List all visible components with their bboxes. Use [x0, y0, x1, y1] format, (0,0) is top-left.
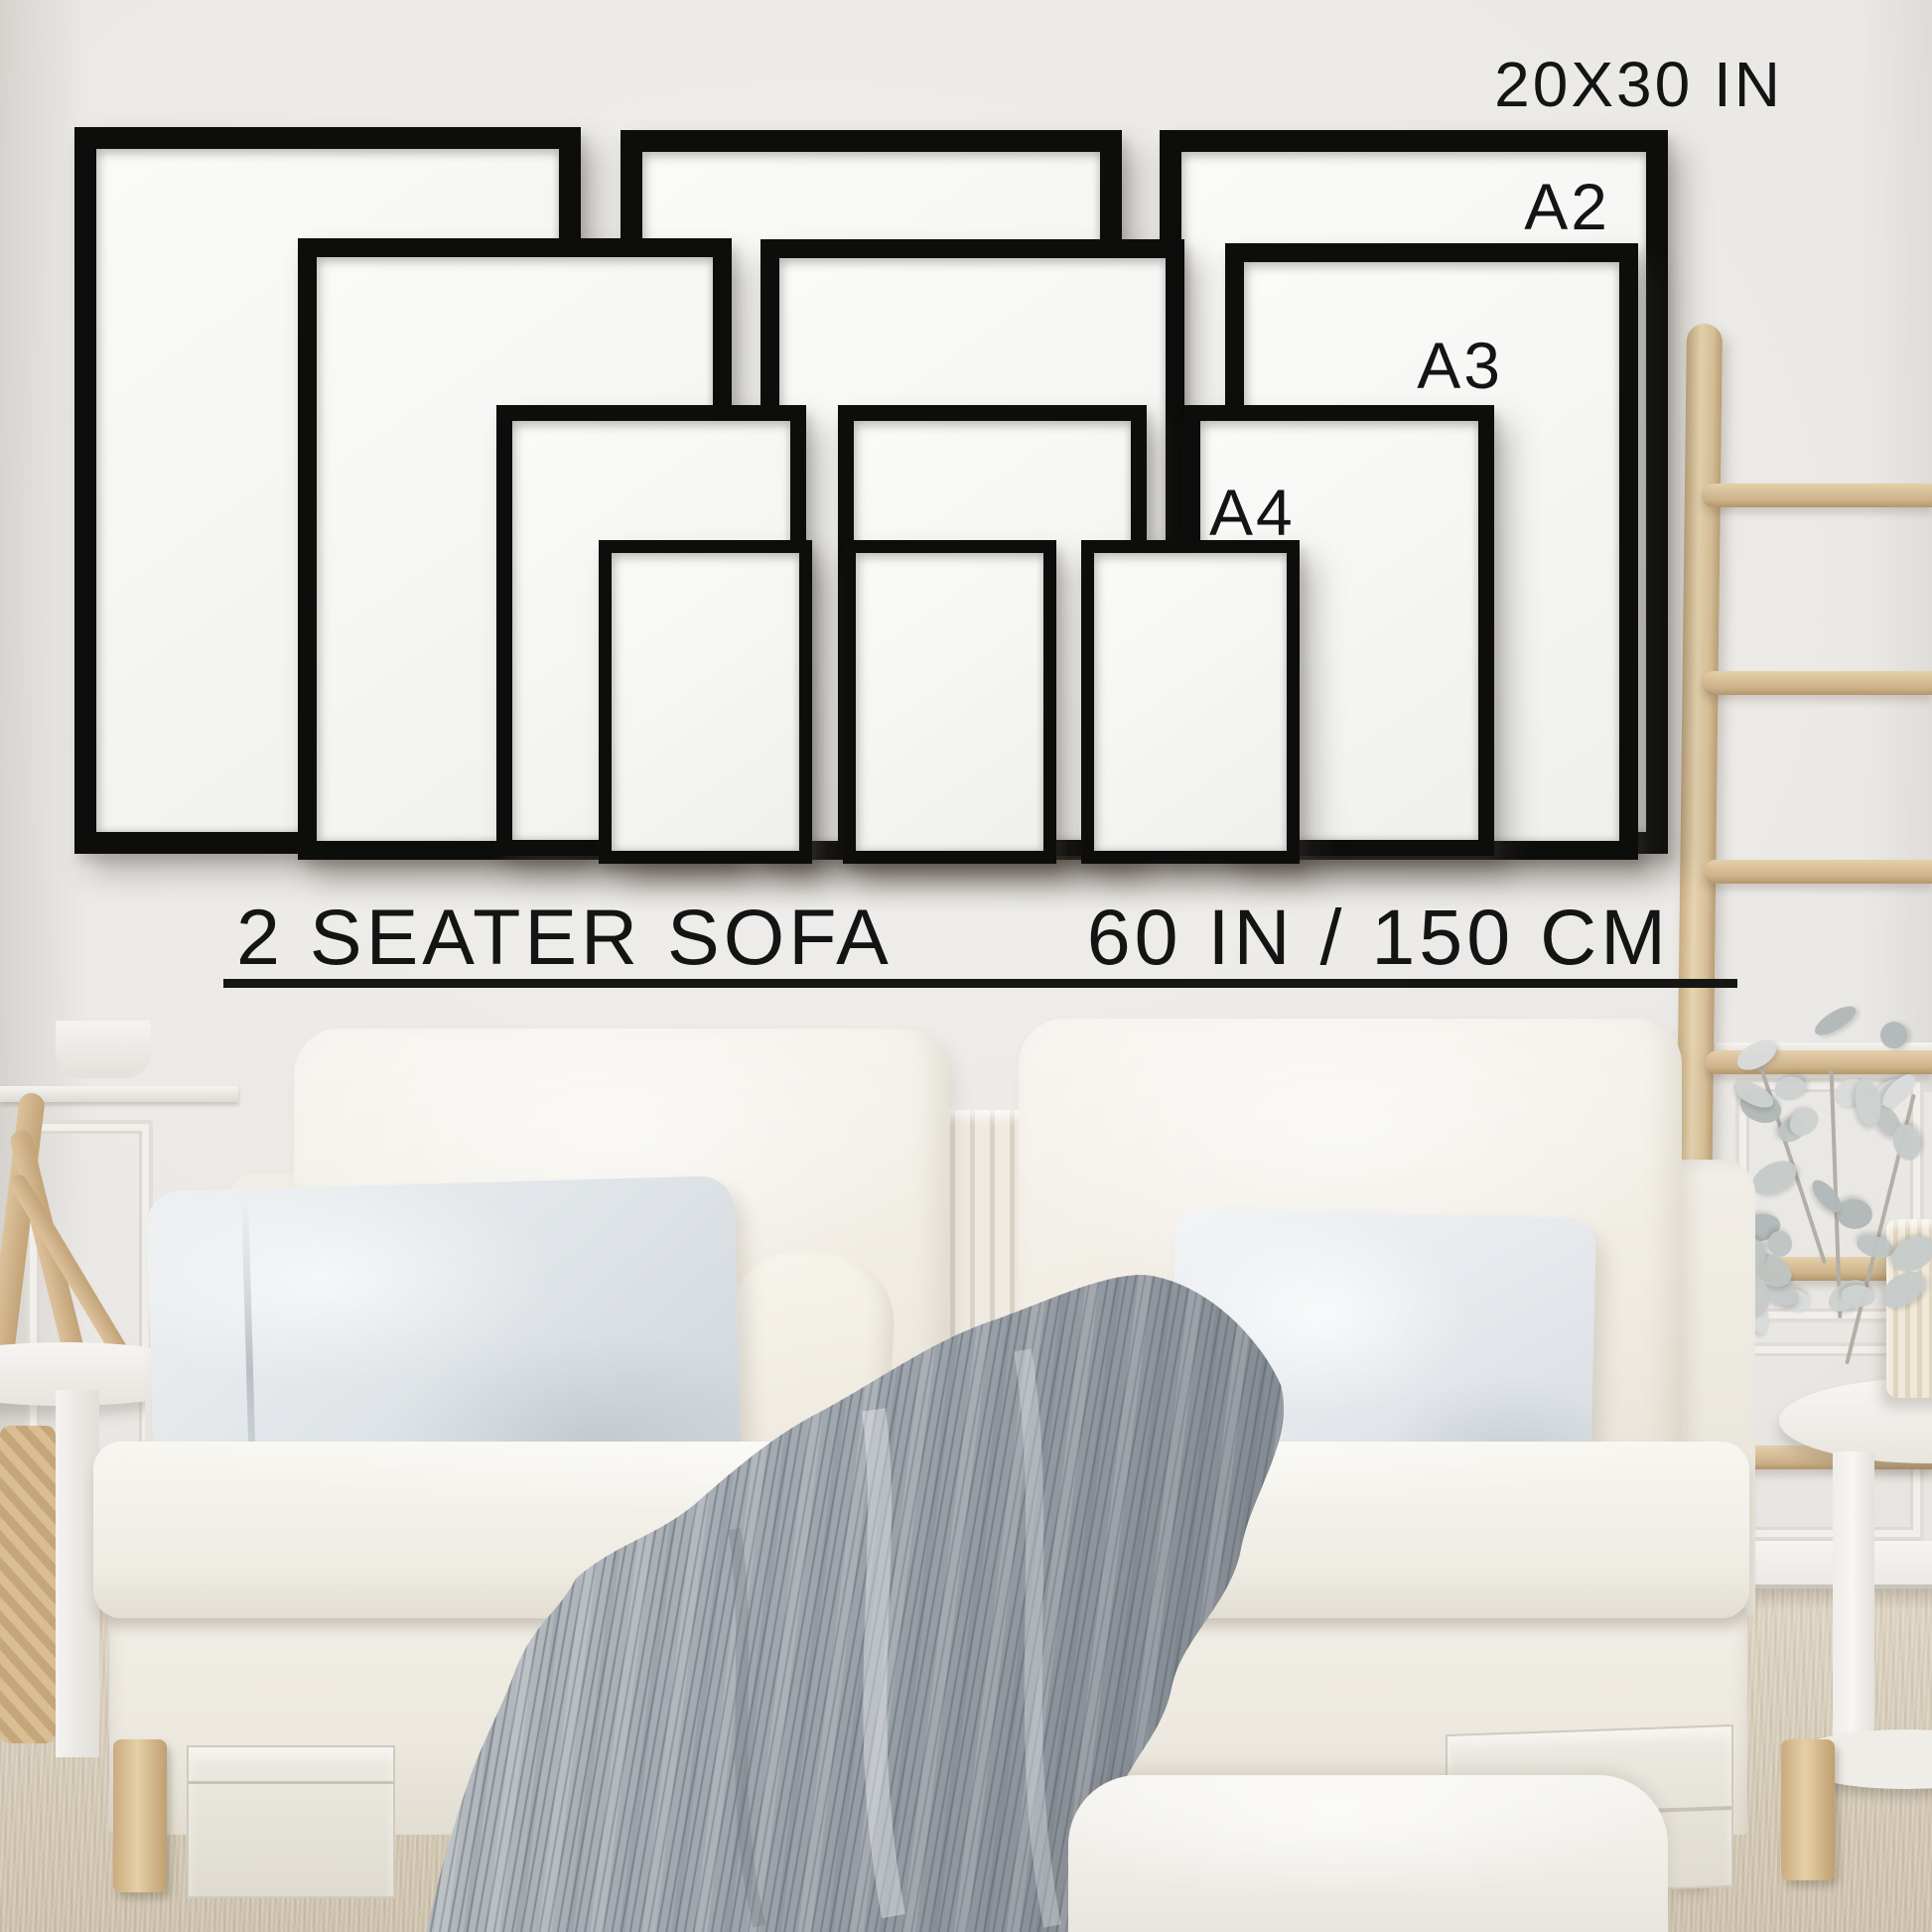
- sofa-leg-left: [113, 1739, 167, 1892]
- size-guide-scene: 20X30 IN A2 A3 A4 2 SEATER SOFA 60 IN / …: [0, 0, 1932, 1932]
- storage-box-left: [187, 1745, 395, 1898]
- sofa-leg-right: [1781, 1739, 1835, 1880]
- white-floor-pillow: [1068, 1775, 1668, 1932]
